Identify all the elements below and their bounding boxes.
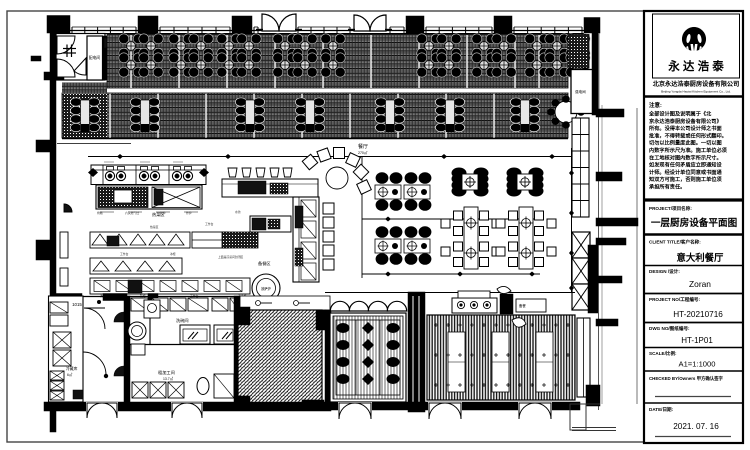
svg-text:上面是凉菜间封闭区: 上面是凉菜间封闭区: [218, 255, 243, 259]
svg-text:承担所有责任。: 承担所有责任。: [649, 183, 685, 191]
svg-text:配电间: 配电间: [89, 55, 101, 60]
svg-text:1015: 1015: [72, 302, 82, 307]
svg-text:烤箱: 烤箱: [97, 211, 103, 215]
svg-text:CHECKED BY/Owners 甲方确认签字: CHECKED BY/Owners 甲方确认签字: [649, 375, 724, 382]
svg-text:HT-20210716: HT-20210716: [673, 310, 723, 319]
svg-text:13.7㎡: 13.7㎡: [163, 376, 174, 381]
svg-text:备餐: 备餐: [519, 303, 526, 308]
svg-text:扒炉: 扒炉: [160, 211, 166, 215]
svg-text:Zoran: Zoran: [689, 279, 711, 289]
svg-text:批准，不得转载或任何形式翻印。: 批准，不得转载或任何形式翻印。: [649, 131, 727, 139]
svg-text:披萨炉: 披萨炉: [261, 286, 271, 291]
svg-text:热菜区: 热菜区: [150, 225, 159, 229]
svg-text:水池: 水池: [235, 210, 241, 214]
svg-text:粗加工间: 粗加工间: [158, 369, 175, 376]
svg-text:强电间: 强电间: [575, 89, 586, 94]
svg-text:A1=1:1000: A1=1:1000: [679, 360, 716, 369]
svg-text:全部设计图及说明属于《北: 全部设计图及说明属于《北: [648, 110, 712, 118]
svg-text:PROJECT/项目名称:: PROJECT/项目名称:: [649, 205, 692, 212]
svg-text:冰柜: 冰柜: [170, 252, 176, 256]
svg-text:六头燃气灶: 六头燃气灶: [125, 211, 139, 215]
svg-text:工作台: 工作台: [120, 252, 129, 256]
svg-text:HT-1P01: HT-1P01: [681, 336, 713, 345]
svg-text:CLIENT TITLE/客户名称:: CLIENT TITLE/客户名称:: [649, 239, 701, 246]
svg-text:270㎡: 270㎡: [358, 150, 368, 155]
svg-text:洗碗间: 洗碗间: [176, 317, 189, 324]
svg-text:Beijing Yongda Haotai Kitchen: Beijing Yongda Haotai Kitchen Equipment …: [661, 90, 731, 94]
svg-text:知双方可施工，否则施工单位须: 知双方可施工，否则施工单位须: [649, 175, 722, 183]
svg-text:备餐区: 备餐区: [258, 260, 271, 267]
svg-text:京永达浩泰厨房设备有限公司》: 京永达浩泰厨房设备有限公司》: [649, 117, 722, 125]
svg-text:PROJECT NO/工程编号:: PROJECT NO/工程编号:: [649, 296, 701, 303]
svg-text:DESIGN /设计:: DESIGN /设计:: [649, 268, 680, 275]
svg-text:炸炉: 炸炉: [186, 211, 192, 215]
svg-text:一层厨房设备平面图: 一层厨房设备平面图: [651, 217, 737, 229]
svg-text:切勿以比例量度此图。一切以图: 切勿以比例量度此图。一切以图: [649, 139, 722, 147]
svg-text:在工地核对图内数字所示尺寸。: 在工地核对图内数字所示尺寸。: [649, 153, 722, 161]
svg-text:工作台: 工作台: [205, 222, 214, 226]
svg-text:计师。经设计单位同意或书面通: 计师。经设计单位同意或书面通: [649, 168, 722, 176]
svg-text:餐厅: 餐厅: [358, 143, 368, 150]
svg-text:2021. 07. 16: 2021. 07. 16: [673, 422, 719, 431]
svg-text:6㎡: 6㎡: [67, 372, 73, 377]
svg-text:如发现有任何矛盾应立即通知设: 如发现有任何矛盾应立即通知设: [649, 161, 722, 169]
svg-text:内数字所示尺为准。施工单位必须: 内数字所示尺为准。施工单位必须: [649, 146, 728, 154]
svg-text:永 达 浩 泰: 永 达 浩 泰: [667, 59, 724, 73]
svg-text:注意:: 注意:: [649, 101, 662, 109]
svg-text:冷藏库: 冷藏库: [66, 366, 78, 371]
svg-text:北京永达浩泰厨房设备有限公司: 北京永达浩泰厨房设备有限公司: [653, 80, 740, 88]
svg-text:SCALE/比例:: SCALE/比例:: [649, 350, 677, 357]
svg-text:意大利餐厅: 意大利餐厅: [677, 252, 725, 263]
svg-text:DATE/日期:: DATE/日期:: [649, 406, 674, 413]
svg-text:所有。没得本公司设计师之书面: 所有。没得本公司设计师之书面: [649, 124, 722, 132]
svg-text:DWG NO/图纸编号:: DWG NO/图纸编号:: [649, 325, 690, 332]
